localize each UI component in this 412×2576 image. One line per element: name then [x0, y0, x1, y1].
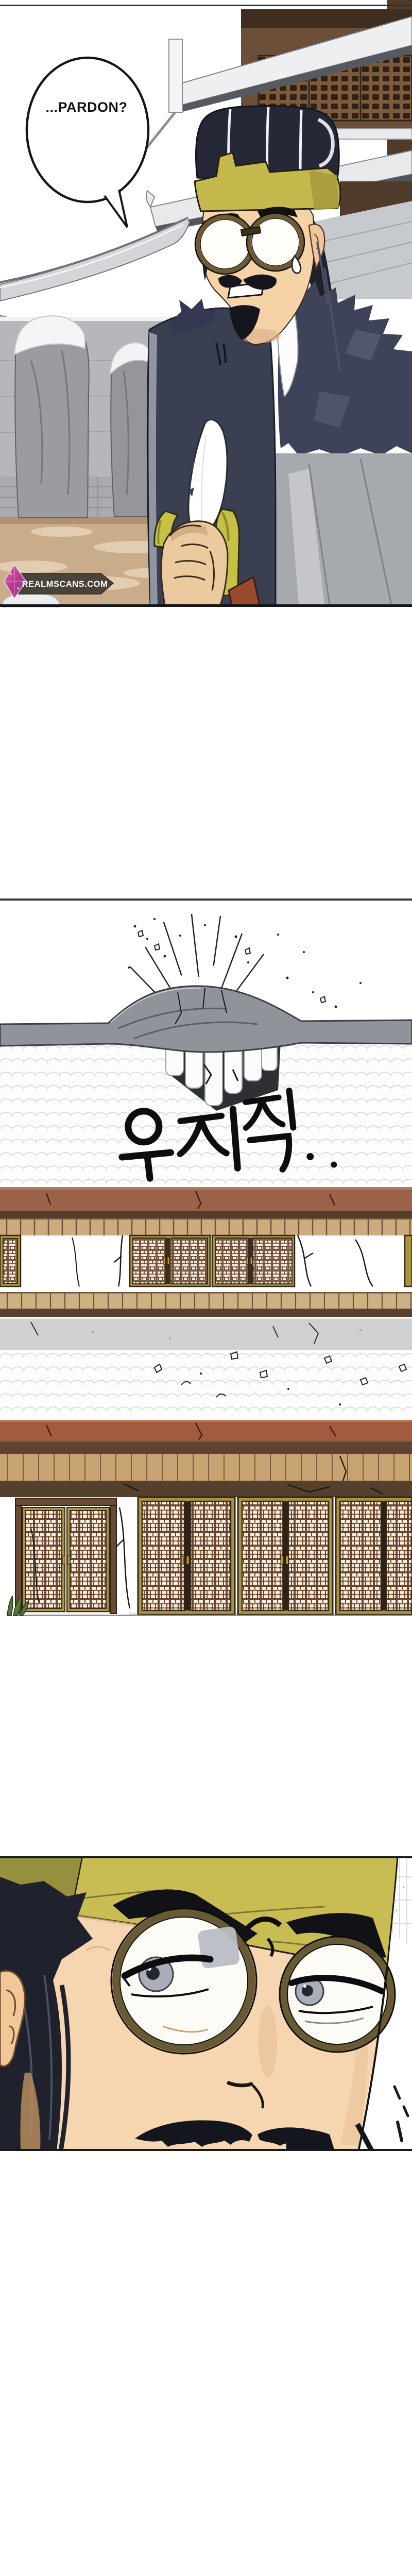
- lens-reflection: [197, 1926, 241, 1969]
- door-unit: [336, 1497, 412, 1615]
- panel1-bottom-border: [0, 604, 412, 607]
- webtoon-page: ...PARDON? REALMSCANS.COM: [0, 0, 412, 2576]
- eave-beam: [0, 1187, 412, 1211]
- tile-band-upper: [0, 1218, 412, 1235]
- official-hat: [195, 106, 340, 211]
- panel-courtyard-official: ...PARDON? REALMSCANS.COM: [0, 0, 412, 608]
- ridge-top-line: [0, 899, 412, 901]
- ground-line: [13, 1615, 412, 1616]
- watermark-text: REALMSCANS.COM: [22, 580, 108, 589]
- panel3-bottom-border: [0, 2149, 412, 2151]
- window-unit: [130, 1235, 210, 1286]
- panel3-top-border: [0, 1856, 412, 1858]
- door-unit: [138, 1497, 235, 1615]
- white-post: [169, 39, 182, 112]
- panel-cracking-hall: [0, 889, 412, 1621]
- door-unit: [238, 1497, 333, 1615]
- roof-tiles-lower: [0, 1350, 412, 1420]
- panel1-top-border: [0, 5, 412, 6]
- panel-face-closeup: [0, 1856, 412, 2151]
- sfx-text: 우지직..: [116, 1103, 342, 1180]
- speech-bubble-text: ...PARDON?: [46, 99, 128, 115]
- window-unit: [212, 1235, 295, 1286]
- lattice-doors: [0, 1497, 412, 1616]
- fist: [161, 521, 228, 605]
- red-beam: [0, 1420, 412, 1440]
- plank-band: [0, 1454, 412, 1481]
- door-lintel-beam: [0, 1481, 412, 1497]
- lattice-windows: [0, 1235, 412, 1286]
- tile-band-lower: [0, 1292, 412, 1309]
- stone-ledge: [0, 1317, 412, 1350]
